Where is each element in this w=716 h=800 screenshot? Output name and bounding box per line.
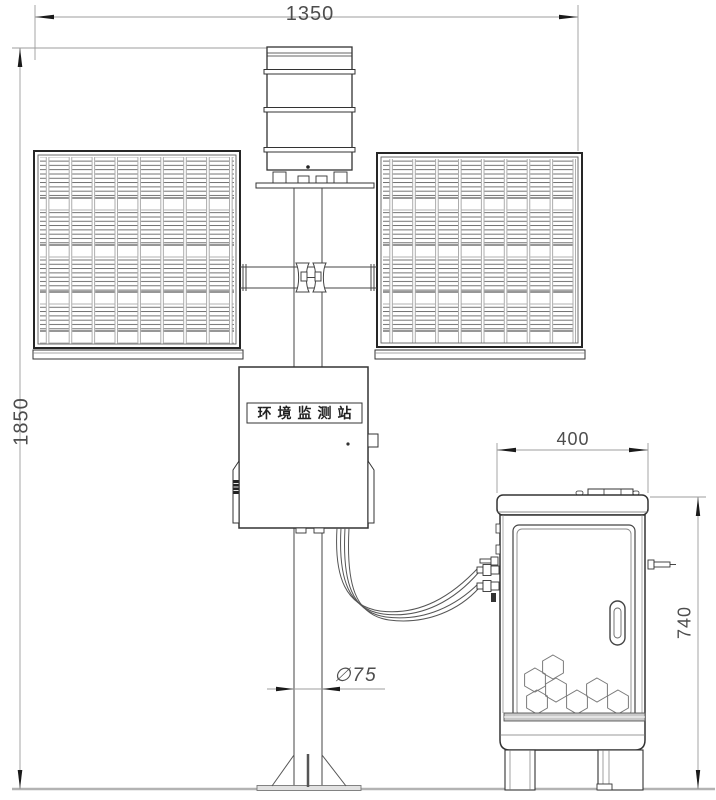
equipment-cabinet: [477, 489, 676, 790]
technical-drawing-canvas: 1350 1850 400 740 ∅75 环境监测站: [0, 0, 716, 800]
sensor-cylinder: [256, 47, 374, 188]
solar-panel-right: [375, 153, 585, 359]
control-box: [233, 367, 378, 533]
dimension-label-1850: 1850: [11, 387, 34, 457]
solar-panel-left: [33, 151, 243, 359]
cabinet-top-plate: [588, 489, 633, 495]
dimension-label-1350: 1350: [275, 3, 345, 26]
station-nameplate: 环境监测站: [247, 403, 362, 423]
box-latch: [368, 434, 378, 447]
cable-gland-connectors: [477, 557, 499, 602]
box-flange-right: [368, 461, 374, 523]
cabinet-legs: [505, 750, 643, 790]
dimension-cabinet-width: [497, 443, 648, 493]
dimension-label-740: 740: [675, 591, 696, 655]
pole-base: [257, 754, 361, 791]
hinge-top: [496, 524, 500, 533]
hinge-bottom: [496, 545, 500, 554]
panel-cross-arm: [240, 263, 377, 292]
dimension-label-pole-diameter: ∅75: [334, 664, 404, 687]
signal-cable: [337, 528, 479, 621]
dimension-label-400: 400: [543, 429, 603, 450]
dimension-pole-diameter: [267, 687, 385, 691]
side-probe-rod: [648, 560, 676, 569]
door-handle: [610, 601, 625, 645]
